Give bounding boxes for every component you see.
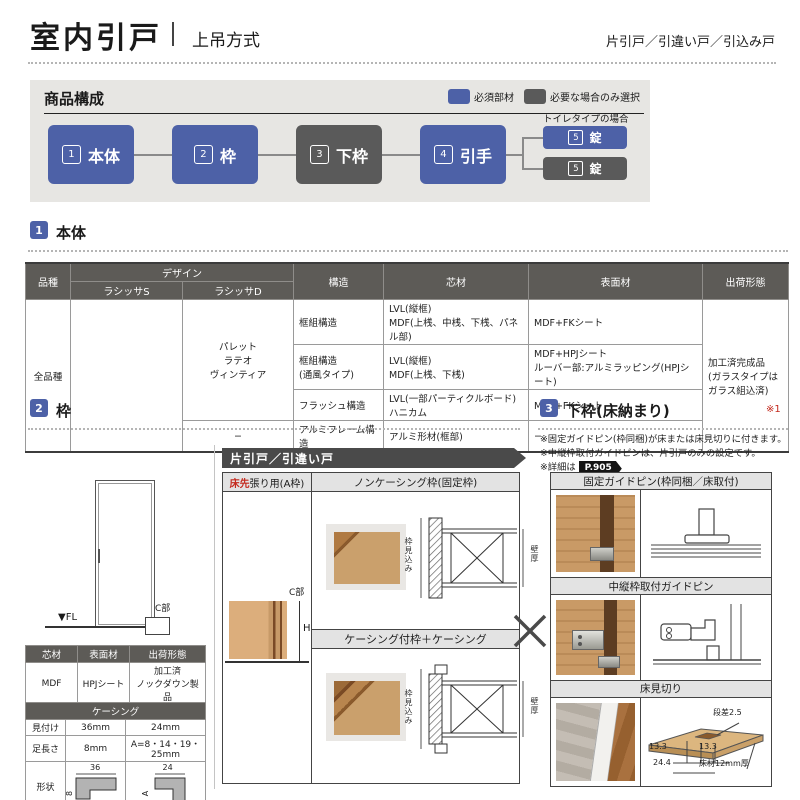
dim-total-label: 24.4	[653, 758, 671, 767]
floor-first-header: 床先張り用(A枠)	[223, 473, 312, 492]
legend: 必須部材 必要な場合のみ選択	[448, 89, 640, 104]
flow-box-hikite: 4 引手	[420, 125, 506, 184]
c-part-label-2: C部	[289, 585, 304, 598]
mat-header-shukka: 出荷形態	[130, 646, 206, 663]
center-stile-pin-photo	[551, 595, 641, 679]
column-separator	[214, 445, 215, 789]
cell-hyoumenzai: MDF+FKシート	[529, 300, 703, 345]
guide-pin-diagram	[641, 490, 771, 577]
note-line-1: ※固定ガイドピン(枠同梱)が床または床見切りに付きます。	[540, 433, 792, 447]
step-dim-label: 段差2.5	[713, 707, 742, 718]
toilet-type-note: トイレタイプの場合	[543, 111, 629, 125]
flow-label: 本体	[88, 143, 120, 167]
cell-shinzai: LVL(一部パーティクルボード) ハニカム	[384, 390, 529, 421]
fl-marker: ▼FL	[58, 612, 77, 623]
h-dim-line	[299, 601, 300, 661]
legend-required-label: 必須部材	[474, 89, 514, 104]
legend-optional-swatch	[524, 89, 546, 104]
section1-rule	[28, 250, 788, 252]
flow-num: 5	[568, 161, 583, 176]
combination-x-icon	[511, 612, 549, 650]
flow-box-lock-2: 5 錠	[543, 157, 627, 180]
col-header-shukka: 出荷形態	[703, 263, 789, 300]
kabe-atsu-label: 壁厚	[529, 545, 540, 563]
catalog-page: 室内引戸 上吊方式 片引戸／引違い戸／引込み戸 商品構成 必須部材 必要な場合の…	[0, 0, 800, 800]
casing-row-mitsuke: 見付け	[26, 720, 66, 736]
cell-lasissa-d-alumi: −	[183, 421, 294, 453]
casing-24: 24mm	[126, 720, 206, 736]
dim-8: 8	[65, 790, 74, 795]
frame-detail-panel: 床先張り用(A枠) ノンケーシング枠(固定枠) C部 H 枠見込み	[222, 472, 520, 784]
dim-left-label: 13.3	[649, 742, 667, 751]
casing-row-ashinagasa: 足長さ	[26, 736, 66, 762]
casing-photo	[326, 673, 406, 741]
cell-kouzou: 框組構造 (通風タイプ)	[294, 345, 384, 390]
flow-connector	[382, 154, 420, 156]
mat-value-shinzai: MDF	[26, 663, 78, 705]
floor-line	[45, 626, 157, 628]
flow-num: 1	[62, 145, 81, 164]
section2-title: 枠	[56, 400, 71, 421]
section3-notes: ※固定ガイドピン(枠同梱)が床または床見切りに付きます。 ※中縦枠取付ガイドピン…	[540, 433, 792, 476]
col-header-kouzou: 構造	[294, 263, 384, 300]
note-mark: ※1	[766, 404, 781, 415]
flow-connector	[506, 154, 522, 156]
floor-first-red: 床先	[230, 475, 250, 490]
cell-kouzou: アルミフレーム構造	[294, 421, 384, 453]
flow-num: 5	[568, 130, 583, 145]
cell-shinzai: LVL(縦框) MDF(上桟、下桟)	[384, 345, 529, 390]
flow-label: 枠	[220, 143, 236, 167]
flow-box-shimowaku: 3 下枠	[296, 125, 382, 184]
floor-strip-diagram: 段差2.5 13.3 13.3 24.4 床材12mm厚	[641, 698, 771, 786]
flow-label: 錠	[589, 129, 601, 146]
guide-pin-header: 固定ガイドピン(枠同梱／床取付)	[551, 473, 771, 490]
center-stile-pin-svg	[645, 602, 767, 674]
body-spec-table: 品種 デザイン 構造 芯材 表面材 出荷形態 ラシッサS ラシッサD 全品種 パ…	[25, 262, 789, 453]
floor-material-label: 床材12mm厚	[699, 758, 749, 769]
frame-corner-photo	[229, 601, 287, 659]
flow-num: 3	[310, 145, 329, 164]
section2-badge: 2	[30, 399, 48, 417]
col-header-design: デザイン	[71, 263, 294, 282]
dim-right-label: 13.3	[699, 742, 717, 751]
col-header-hinshu: 品種	[26, 263, 71, 300]
casing-row-keijou: 形状	[26, 762, 66, 800]
casing-table: ケーシング 見付け 36mm 24mm 足長さ 8mm A=8・14・19・25…	[25, 702, 206, 800]
note-line-2: ※中縦枠取付ガイドピンは、片引戸のみの設定です。	[540, 447, 792, 461]
cell-kouzou: 框組構造	[294, 300, 384, 345]
col-header-lasissa-s: ラシッサS	[71, 282, 183, 300]
guide-pin-photo	[551, 490, 641, 577]
dim-24: 24	[163, 763, 173, 772]
flow-connector	[258, 154, 296, 156]
cell-shinzai: アルミ形材(框部)	[384, 421, 529, 453]
casing-36: 36mm	[66, 720, 126, 736]
flow-box-lock-1: 5 錠	[543, 126, 627, 149]
door-handle-mark	[98, 549, 100, 563]
mat-value-hyoumenzai: HPJシート	[78, 663, 130, 705]
section1-badge: 1	[30, 221, 48, 239]
c-part-label: C部	[155, 601, 170, 614]
flow-box-hontai: 1 本体	[48, 125, 134, 184]
frame-material-table: 芯材 表面材 出荷形態 MDF HPJシート 加工済 ノックダウン製品	[25, 645, 206, 705]
floor-strip-header: 床見切り	[551, 681, 771, 698]
header-door-types: 片引戸／引違い戸／引込み戸	[606, 31, 775, 50]
cell-hyoumenzai: MDF+HPJシート ルーバー部:アルミラッピング(HPJシート)	[529, 345, 703, 390]
noncasing-section-diagram: 枠見込み 壁厚	[413, 515, 531, 601]
flow-connector	[134, 154, 172, 156]
page-subtitle: 上吊方式	[192, 26, 260, 51]
casing-a-dims: A=8・14・19・25mm	[126, 736, 206, 762]
flow-label: 錠	[589, 160, 601, 177]
cell-lasissa-d: パレット ラテオ ヴィンティア	[183, 300, 294, 421]
mat-header-shinzai: 芯材	[26, 646, 78, 663]
legend-optional-label: 必要な場合のみ選択	[550, 89, 640, 104]
casing-frame-header: ケーシング付枠＋ケーシング	[312, 629, 519, 649]
waku-mikomi-label: 枠見込み	[403, 537, 414, 573]
title-divider	[172, 22, 174, 46]
flow-connector	[522, 168, 543, 170]
shimowaku-detail-box: 固定ガイドピン(枠同梱／床取付) 中縦枠取付ガイドピン	[550, 472, 772, 787]
legend-required-swatch	[448, 89, 470, 104]
casing-8mm: 8mm	[66, 736, 126, 762]
flow-label: 引手	[460, 143, 492, 167]
casing-profile-24: 24 A	[126, 762, 206, 800]
flow-num: 2	[194, 145, 213, 164]
flow-box-waku: 2 枠	[172, 125, 258, 184]
section3-rule	[538, 428, 788, 430]
page-title: 室内引戸	[30, 13, 162, 57]
dim-A: A	[141, 790, 150, 795]
floor-first-rest: 張り用(A枠)	[250, 475, 305, 490]
casing-section-svg	[413, 663, 531, 755]
door-elevation-diagram	[95, 480, 155, 628]
flow-label: 下枠	[336, 143, 368, 167]
flow-branch	[522, 137, 524, 169]
section3-badge: 3	[540, 399, 558, 417]
noncasing-photo	[326, 524, 406, 590]
section1-title: 本体	[56, 222, 86, 243]
flow-connector	[522, 137, 543, 139]
waku-mikomi-label: 枠見込み	[403, 689, 414, 725]
mat-value-shukka: 加工済 ノックダウン製品	[130, 663, 206, 705]
floor-strip-photo	[551, 698, 641, 786]
composition-title: 商品構成	[44, 88, 104, 109]
dim-36: 36	[90, 763, 100, 772]
section3-title: 下枠(床納まり)	[566, 400, 670, 421]
guide-pin-svg	[645, 501, 767, 567]
casing-section-diagram: 枠見込み 壁厚	[413, 663, 531, 755]
h-dim-label: H	[303, 623, 311, 634]
mat-header-hyoumenzai: 表面材	[78, 646, 130, 663]
center-stile-pin-header: 中縦枠取付ガイドピン	[551, 578, 771, 595]
center-stile-pin-diagram	[641, 595, 771, 679]
cell-kouzou: フラッシュ構造	[294, 390, 384, 421]
casing-profile-36: 36 8	[66, 762, 126, 800]
col-header-shinzai: 芯材	[384, 263, 529, 300]
header-rule	[28, 62, 776, 64]
floor-baseline	[225, 661, 309, 663]
casing-title: ケーシング	[26, 703, 206, 720]
c-part-callout-box	[145, 617, 170, 635]
noncasing-section-svg	[413, 515, 531, 601]
door-type-banner: 片引戸／引違い戸	[222, 448, 526, 468]
flow-num: 4	[434, 145, 453, 164]
noncasing-header: ノンケーシング枠(固定枠)	[312, 473, 519, 492]
col-header-hyoumenzai: 表面材	[529, 263, 703, 300]
composition-panel: 商品構成 必須部材 必要な場合のみ選択 1 本体 2 枠 3 下枠 4	[30, 80, 650, 202]
cell-shinzai: LVL(縦框) MDF(上桟、中桟、下桟、パネル部)	[384, 300, 529, 345]
section2-rule	[28, 428, 520, 430]
kabe-atsu-label: 壁厚	[529, 697, 540, 715]
col-header-lasissa-d: ラシッサD	[183, 282, 294, 300]
